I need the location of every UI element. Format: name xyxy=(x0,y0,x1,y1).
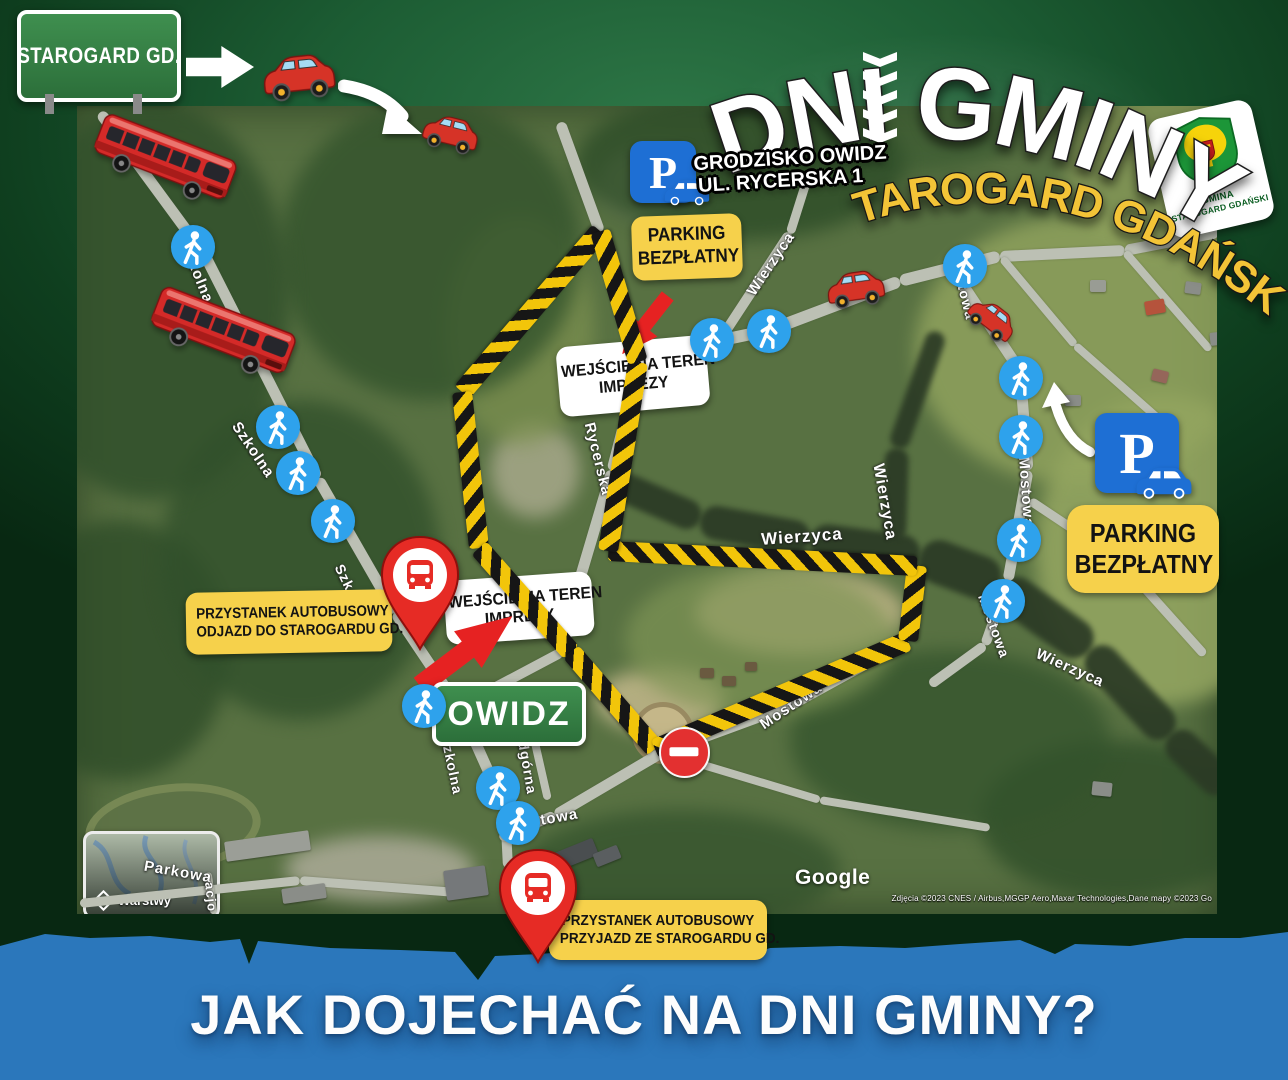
parking-free-2-line1: PARKING xyxy=(1075,518,1212,549)
pedestrian-icon xyxy=(170,224,216,270)
no-entry-icon xyxy=(659,727,710,778)
car-icon xyxy=(255,44,341,110)
parking-free-2-line2: BEZPŁATNY xyxy=(1075,549,1212,580)
pedestrian-icon xyxy=(255,404,301,450)
parking-route-arrow-icon xyxy=(1038,380,1098,458)
bus-arrival-line2: PRZYJAZD ZE STAROGARDU GD. xyxy=(560,930,756,948)
origin-road-sign-label: STAROGARD GD. xyxy=(17,43,180,69)
bus-stop-pin xyxy=(496,848,580,971)
pedestrian-icon xyxy=(310,498,356,544)
parking-free-label-2: PARKING BEZPŁATNY xyxy=(1067,505,1219,593)
origin-road-sign: STAROGARD GD. xyxy=(17,10,181,102)
sign-post-left xyxy=(45,94,54,114)
car-icon xyxy=(414,104,485,164)
bus-stop-arrival-label: PRZYSTANEK AUTOBUSOWY PRZYJAZD ZE STAROG… xyxy=(549,900,767,960)
route-hazard-stripe xyxy=(898,565,927,642)
chevrons-down-icon xyxy=(863,52,897,147)
pedestrian-icon xyxy=(998,355,1044,401)
parking-car-icon-2 xyxy=(1133,460,1195,502)
route-hazard-stripe xyxy=(452,391,489,549)
sign-post-right xyxy=(133,94,142,114)
pedestrian-icon xyxy=(998,414,1044,460)
bus-stop-departure-label: PRZYSTANEK AUTOBUSOWY ODJAZD DO STAROGAR… xyxy=(185,589,392,655)
village-sign-label: OWIDZ xyxy=(447,695,570,734)
bus-icon xyxy=(141,279,304,393)
pedestrian-icon xyxy=(996,517,1042,563)
pedestrian-icon xyxy=(495,800,541,846)
route-arrow-right-icon xyxy=(186,46,254,88)
event-directions-poster: Warstwy Google Zdjęcia ©2023 CNES / Airb… xyxy=(0,0,1288,1080)
bus-departure-line2: ODJAZD DO STAROGARDU GD. xyxy=(196,620,382,641)
pedestrian-icon xyxy=(980,578,1026,624)
bus-arrival-line1: PRZYSTANEK AUTOBUSOWY xyxy=(560,912,756,930)
route-hazard-stripe xyxy=(608,541,918,576)
bus-stop-pin xyxy=(378,535,462,658)
pedestrian-icon xyxy=(401,683,447,729)
footer-question: JAK DOJECHAĆ NA DNI GMINY? xyxy=(0,982,1288,1047)
village-sign-owidz: OWIDZ xyxy=(432,682,586,746)
pedestrian-icon xyxy=(746,308,792,354)
pedestrian-icon xyxy=(275,450,321,496)
bus-icon xyxy=(84,107,245,220)
route-arrow-curved-icon xyxy=(338,76,428,142)
pedestrian-icon xyxy=(689,317,735,363)
